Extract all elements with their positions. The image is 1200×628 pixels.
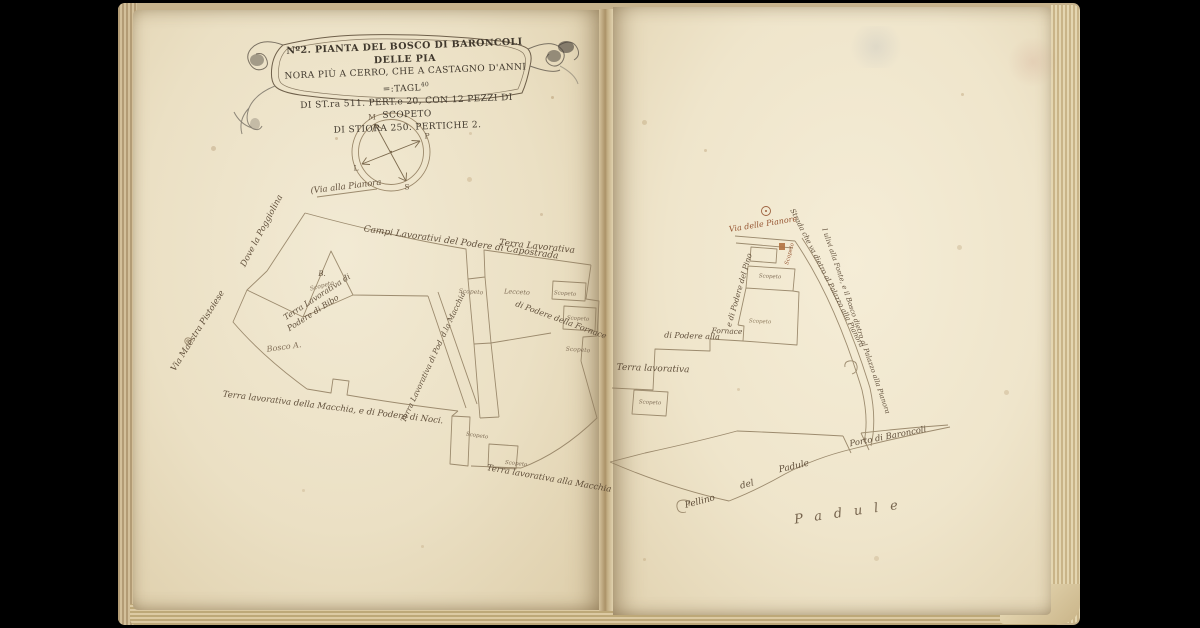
book-right-page-edges xyxy=(1051,5,1080,623)
photo-stage: Nº2. PIANTA DEL BOSCO DI BARONCOLI DELLE… xyxy=(0,0,1200,628)
paper-smudge xyxy=(1006,38,1060,86)
right-page xyxy=(613,7,1051,615)
ink-bleedthrough xyxy=(845,26,907,68)
foxing-spots xyxy=(0,0,3,3)
title-superscript: 40 xyxy=(421,81,430,88)
book-spine-gutter xyxy=(599,9,613,611)
map-title-cartouche: Nº2. PIANTA DEL BOSCO DI BARONCOLI DELLE… xyxy=(281,35,530,139)
